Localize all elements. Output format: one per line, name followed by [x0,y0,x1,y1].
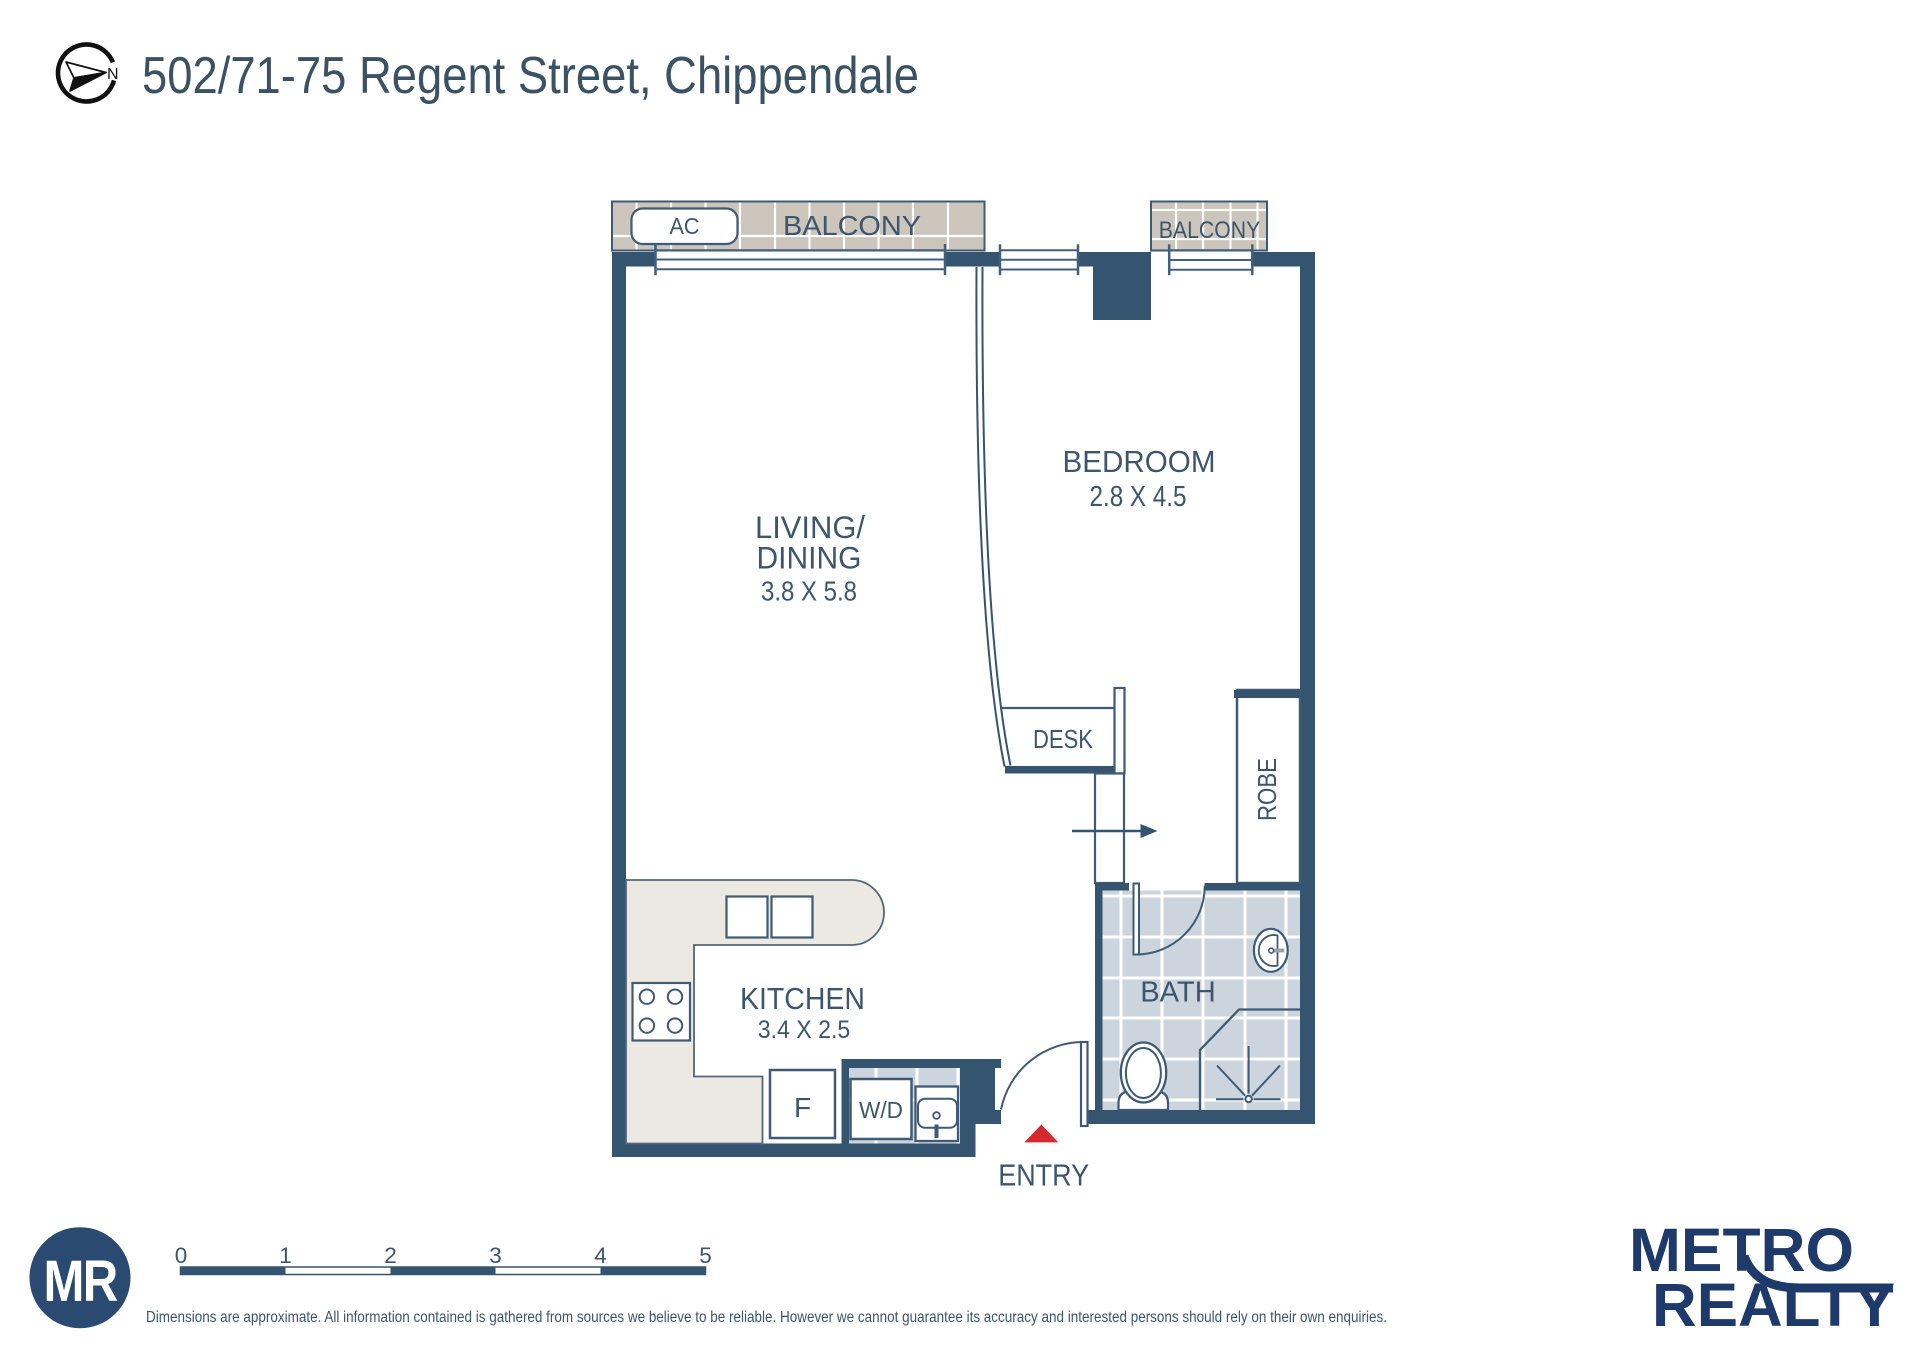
svg-text:2: 2 [384,1243,397,1268]
svg-text:5: 5 [699,1243,712,1268]
svg-text:W/D: W/D [859,1097,903,1123]
svg-text:3.4 X 2.5: 3.4 X 2.5 [758,1016,851,1044]
svg-text:AC: AC [670,213,700,239]
svg-text:4: 4 [594,1243,607,1268]
svg-text:BALCONY: BALCONY [783,210,921,241]
svg-text:502/71-75 Regent Street, Chipp: 502/71-75 Regent Street, Chippendale [142,47,919,105]
svg-text:DINING: DINING [757,540,862,576]
svg-text:BALCONY: BALCONY [1159,217,1261,244]
svg-text:DESK: DESK [1033,724,1094,754]
svg-text:KITCHEN: KITCHEN [740,981,865,1016]
svg-text:3: 3 [489,1243,502,1268]
svg-text:Dimensions are approximate. Al: Dimensions are approximate. All informat… [146,1309,1387,1326]
svg-text:0: 0 [175,1243,188,1268]
svg-text:MR: MR [44,1249,118,1314]
svg-text:ROBE: ROBE [1252,758,1282,821]
svg-text:BATH: BATH [1140,977,1216,1009]
svg-text:F: F [794,1092,811,1123]
svg-text:BEDROOM: BEDROOM [1063,444,1216,479]
svg-text:2.8 X 4.5: 2.8 X 4.5 [1090,481,1187,513]
svg-text:N: N [107,66,119,83]
svg-text:ENTRY: ENTRY [998,1157,1089,1192]
svg-text:3.8 X 5.8: 3.8 X 5.8 [761,576,857,607]
svg-text:1: 1 [279,1243,292,1268]
